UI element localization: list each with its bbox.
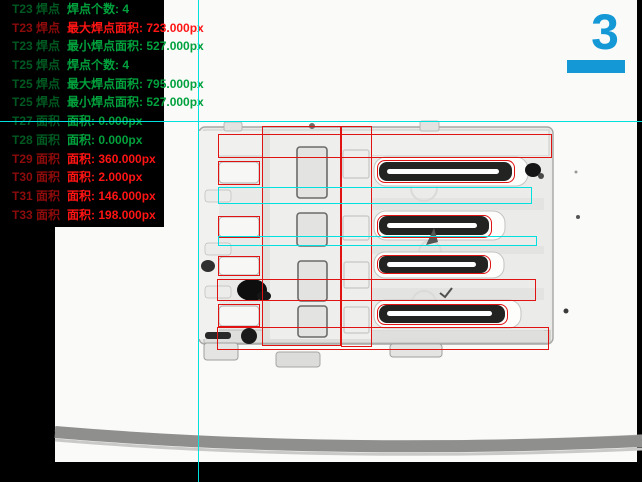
roi-solder-contact-3 <box>218 256 260 276</box>
tool-name: T29 面积 <box>12 152 60 166</box>
result-line: T25 焊点焊点个数: 4 <box>0 56 164 75</box>
result-line: T23 焊点最小焊点面积: 527.000px <box>0 37 164 56</box>
tool-name: T23 焊点 <box>12 2 60 16</box>
measure-rect-2 <box>218 236 537 246</box>
result-line: T23 焊点最大焊点面积: 723.000px <box>0 19 164 38</box>
tool-name: T23 焊点 <box>12 39 60 53</box>
result-panel: T23 焊点焊点个数: 4T23 焊点最大焊点面积: 723.000pxT23 … <box>0 0 164 227</box>
station-number: 3 <box>575 6 635 58</box>
crosshair-horizontal-line <box>0 121 642 122</box>
roi-bottom-band <box>217 327 549 350</box>
result-line: T28 面积面积: 0.000px <box>0 131 164 150</box>
tool-name: T30 面积 <box>12 170 60 184</box>
tool-name: T28 面积 <box>12 133 60 147</box>
measurement-text: 最大焊点面积: 795.000px <box>67 77 204 91</box>
measurement-text: 最小焊点面积: 527.000px <box>67 95 204 109</box>
result-line: T31 面积面积: 146.000px <box>0 187 164 206</box>
roi-pin-4 <box>377 304 508 325</box>
roi-pin-3 <box>377 255 491 274</box>
result-line: T23 焊点焊点个数: 4 <box>0 0 164 19</box>
measurement-text: 面积: 0.000px <box>67 133 142 147</box>
tool-name: T23 焊点 <box>12 21 60 35</box>
result-line: T29 面积面积: 360.000px <box>0 150 164 169</box>
roi-pin-2 <box>377 215 492 238</box>
result-line: T30 面积面积: 2.000px <box>0 168 164 187</box>
roi-solder-contact-4 <box>218 304 260 327</box>
station-underline-bar <box>567 60 625 73</box>
roi-pin-1 <box>377 160 515 183</box>
measurement-text: 面积: 2.000px <box>67 170 142 184</box>
result-line: T25 焊点最小焊点面积: 527.000px <box>0 93 164 112</box>
measurement-text: 面积: 360.000px <box>67 152 156 166</box>
measure-rect-1 <box>218 187 532 204</box>
measurement-text: 焊点个数: 4 <box>67 58 129 72</box>
result-line: T33 面积面积: 198.000px <box>0 206 164 225</box>
tool-name: T25 焊点 <box>12 77 60 91</box>
tool-name: T25 焊点 <box>12 95 60 109</box>
tool-name: T25 焊点 <box>12 58 60 72</box>
vision-inspection-screen: { "panel": { "pass_color": "#00A13C", "f… <box>0 0 642 482</box>
measurement-text: 最大焊点面积: 723.000px <box>67 21 204 35</box>
measurement-text: 焊点个数: 4 <box>67 2 129 16</box>
station-indicator: 3 <box>575 6 635 58</box>
measurement-text: 面积: 198.000px <box>67 208 156 222</box>
roi-middle-band <box>217 279 536 301</box>
tool-name: T31 面积 <box>12 189 60 203</box>
crosshair-vertical-line <box>198 0 199 482</box>
tool-name: T33 面积 <box>12 208 60 222</box>
measurement-text: 最小焊点面积: 527.000px <box>67 39 204 53</box>
measurement-text: 面积: 146.000px <box>67 189 156 203</box>
roi-solder-contact-1 <box>218 161 260 185</box>
result-line: T25 焊点最大焊点面积: 795.000px <box>0 75 164 94</box>
roi-solder-contact-2 <box>218 216 260 238</box>
